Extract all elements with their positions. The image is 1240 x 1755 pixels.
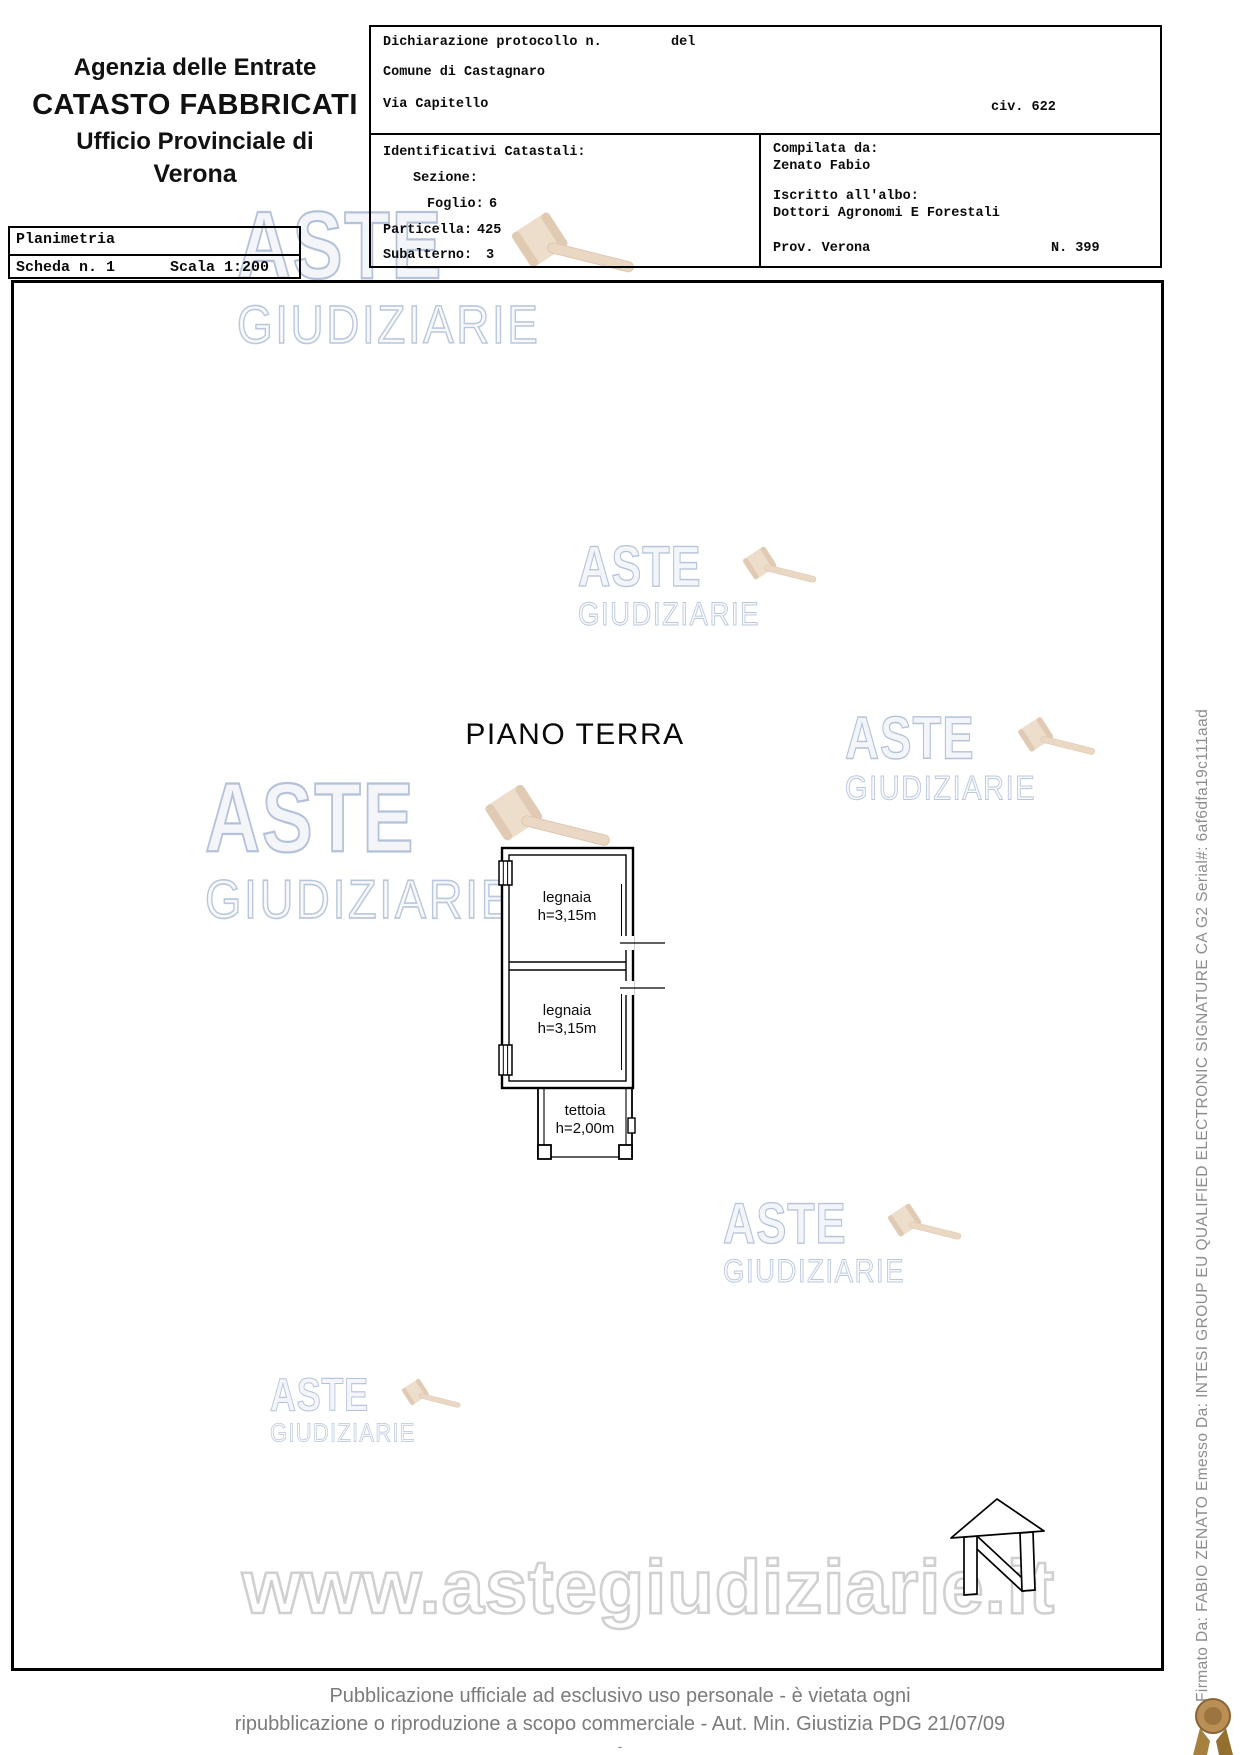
sezione-label: Sezione:: [413, 171, 478, 186]
subalterno-value: 3: [486, 248, 494, 263]
room-label-legnaia-2: legnaia h=3,15m: [512, 1002, 622, 1038]
civ-value: civ. 622: [991, 100, 1056, 115]
room-name: tettoia: [530, 1102, 640, 1120]
catasto-title: Identificativi Catastali:: [383, 145, 586, 160]
room-label-legnaia-1: legnaia h=3,15m: [512, 889, 622, 925]
room-name: legnaia: [512, 889, 622, 907]
foglio-label: Foglio:: [427, 197, 484, 212]
protocollo-label: Dichiarazione protocollo n.: [383, 35, 602, 50]
particella-value: 425: [477, 223, 501, 238]
footer-disclaimer: Pubblicazione ufficiale ad esclusivo uso…: [120, 1682, 1120, 1754]
footer-dash: -: [120, 1738, 1120, 1754]
office-label: Ufficio Provinciale di: [30, 128, 360, 156]
via-value: Via Capitello: [383, 97, 488, 112]
prov-value: Prov. Verona: [773, 241, 870, 256]
room-height: h=3,15m: [512, 1020, 622, 1038]
floor-title: PIANO TERRA: [455, 718, 695, 752]
comune-value: Comune di Castagnaro: [383, 65, 545, 80]
catasto-box: Identificativi Catastali: Sezione: Fogli…: [369, 133, 1162, 268]
foglio-value: 6: [489, 197, 497, 212]
box-divider: [759, 135, 761, 266]
particella-label: Particella:: [383, 223, 472, 238]
subalterno-label: Subalterno:: [383, 248, 472, 263]
document-page: ASTE GIUDIZIARIE ASTE GIUDIZIARIE ASTE G…: [0, 0, 1240, 1755]
room-height: h=2,00m: [530, 1120, 640, 1138]
room-name: legnaia: [512, 1002, 622, 1020]
planimetria-title: Planimetria: [10, 228, 299, 256]
room-height: h=3,15m: [512, 907, 622, 925]
plan-border-frame: [11, 280, 1164, 1671]
planimetria-box: Planimetria Scheda n. 1 Scala 1:200: [8, 226, 301, 279]
albo-number: N. 399: [1051, 241, 1100, 256]
room-label-tettoia: tettoia h=2,00m: [530, 1102, 640, 1138]
scheda-number: Scheda n. 1: [16, 259, 115, 276]
declaration-box: Dichiarazione protocollo n. del Comune d…: [369, 25, 1162, 135]
albo-label: Iscritto all'albo:: [773, 189, 919, 204]
agency-header: Agenzia delle Entrate CATASTO FABBRICATI…: [30, 54, 360, 189]
compilata-label: Compilata da:: [773, 142, 878, 157]
scale-value: Scala 1:200: [170, 259, 269, 276]
del-label: del: [671, 35, 695, 50]
province-name: Verona: [30, 160, 360, 189]
albo-value: Dottori Agronomi E Forestali: [773, 206, 1000, 221]
seal-ribbon-icon: [1193, 1699, 1233, 1755]
footer-line2: ripubblicazione o riproduzione a scopo c…: [120, 1710, 1120, 1738]
catasto-title: CATASTO FABBRICATI: [30, 89, 360, 122]
footer-line1: Pubblicazione ufficiale ad esclusivo uso…: [120, 1682, 1120, 1710]
agency-name: Agenzia delle Entrate: [30, 54, 360, 82]
digital-signature-text: Firmato Da: FABIO ZENATO Emesso Da: INTE…: [1194, 717, 1212, 1702]
compilata-value: Zenato Fabio: [773, 159, 870, 174]
